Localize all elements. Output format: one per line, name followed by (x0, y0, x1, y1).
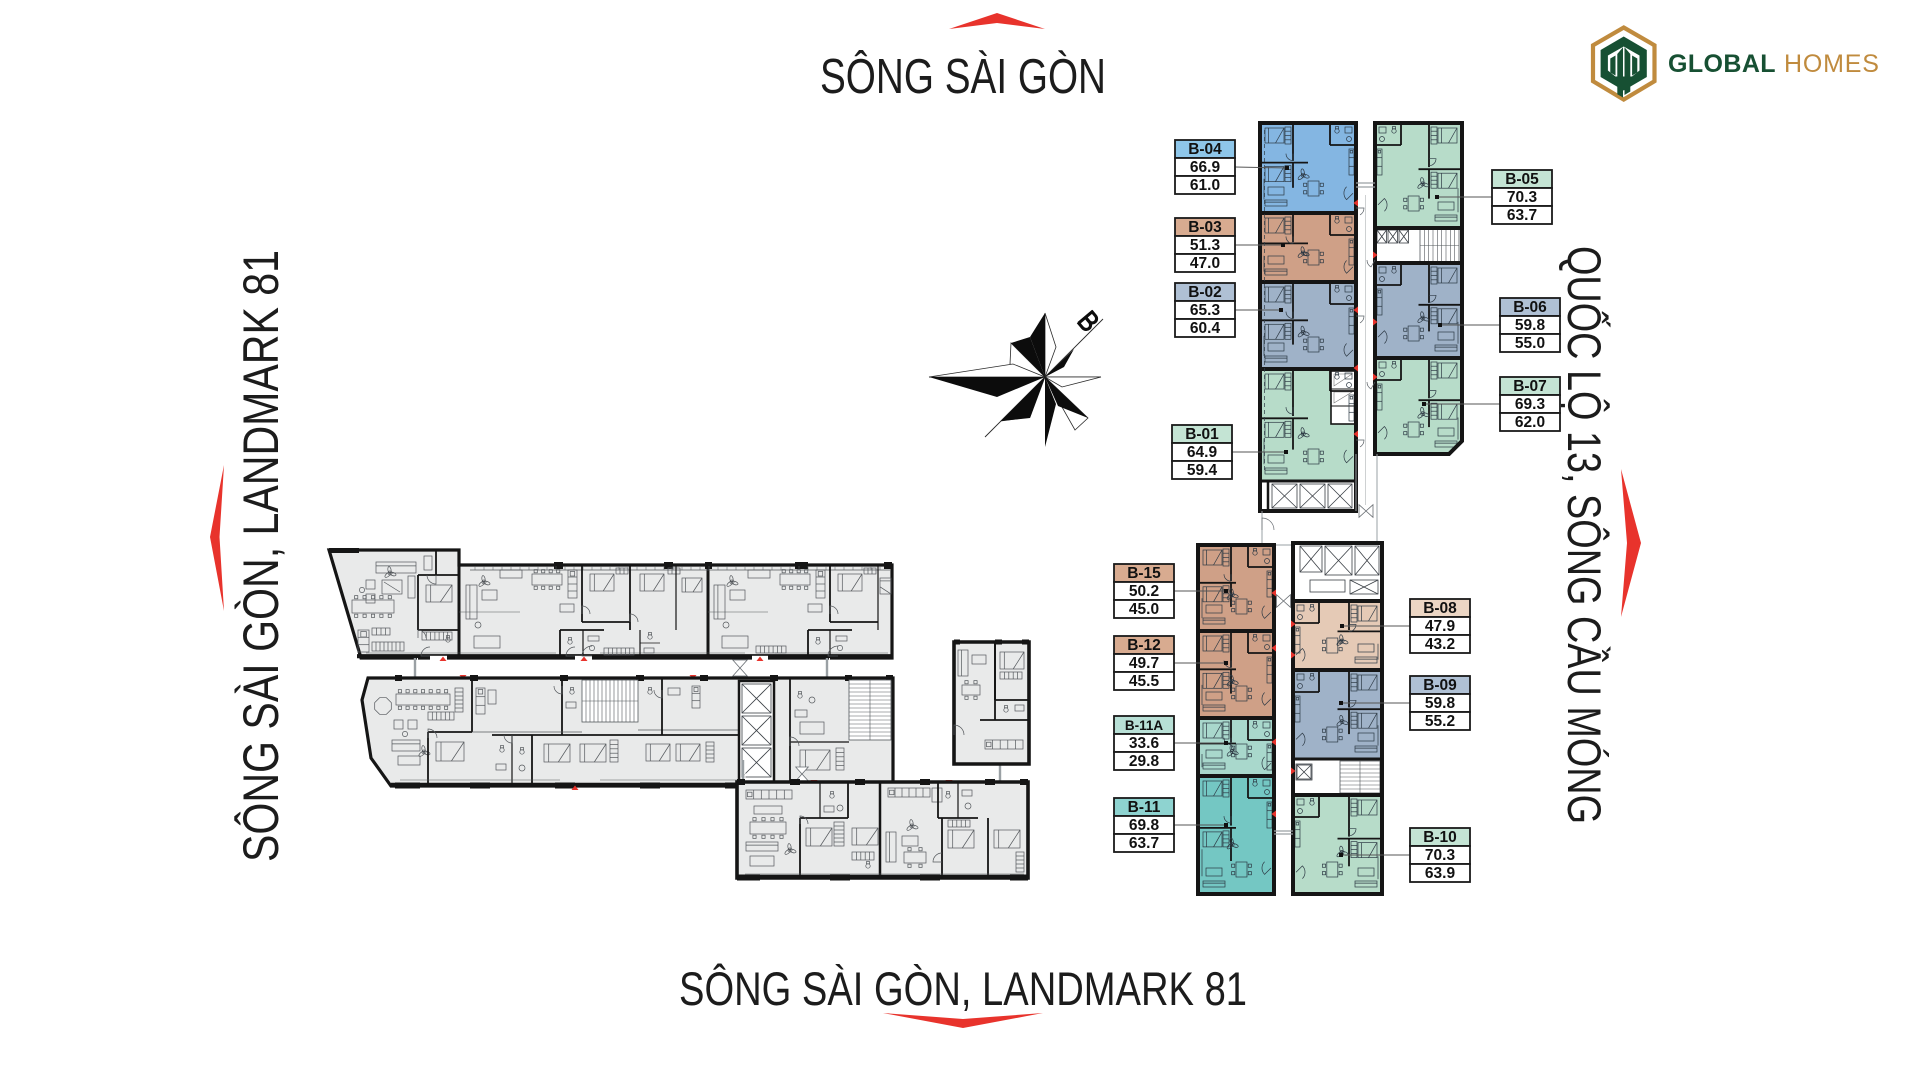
svg-text:SÔNG SÀI GÒN, LANDMARK 81: SÔNG SÀI GÒN, LANDMARK 81 (233, 250, 289, 862)
svg-text:49.7: 49.7 (1129, 655, 1159, 672)
svg-text:45.0: 45.0 (1129, 601, 1159, 618)
svg-text:64.9: 64.9 (1187, 444, 1218, 461)
svg-text:B-09: B-09 (1423, 677, 1457, 694)
svg-text:55.0: 55.0 (1515, 335, 1545, 352)
svg-text:65.3: 65.3 (1190, 302, 1221, 319)
svg-text:B-07: B-07 (1513, 378, 1547, 395)
svg-text:70.3: 70.3 (1425, 847, 1456, 864)
svg-text:B-15: B-15 (1127, 565, 1161, 582)
svg-text:60.4: 60.4 (1190, 320, 1221, 337)
svg-text:45.5: 45.5 (1129, 673, 1160, 690)
svg-text:SÔNG SÀI GÒN, LANDMARK 81: SÔNG SÀI GÒN, LANDMARK 81 (679, 962, 1247, 1015)
svg-text:B-10: B-10 (1423, 829, 1457, 846)
svg-text:59.8: 59.8 (1425, 695, 1456, 712)
svg-text:63.7: 63.7 (1507, 207, 1537, 224)
svg-text:47.0: 47.0 (1190, 255, 1220, 272)
svg-text:51.3: 51.3 (1190, 237, 1221, 254)
svg-text:B-06: B-06 (1513, 299, 1547, 316)
svg-text:55.2: 55.2 (1425, 713, 1455, 730)
svg-text:59.8: 59.8 (1515, 317, 1546, 334)
svg-text:59.4: 59.4 (1187, 462, 1218, 479)
svg-text:QUỐC LỘ 13, SÔNG CẦU MÓNG: QUỐC LỘ 13, SÔNG CẦU MÓNG (1558, 246, 1611, 824)
svg-text:SÔNG SÀI GÒN: SÔNG SÀI GÒN (820, 50, 1106, 104)
svg-text:47.9: 47.9 (1425, 618, 1456, 635)
svg-text:66.9: 66.9 (1190, 159, 1221, 176)
svg-text:69.3: 69.3 (1515, 396, 1546, 413)
svg-text:43.2: 43.2 (1425, 636, 1455, 653)
svg-text:B-02: B-02 (1188, 284, 1222, 301)
svg-text:70.3: 70.3 (1507, 189, 1538, 206)
svg-text:69.8: 69.8 (1129, 817, 1160, 834)
svg-text:B-05: B-05 (1505, 171, 1539, 188)
svg-text:B-04: B-04 (1188, 141, 1222, 158)
svg-text:62.0: 62.0 (1515, 414, 1545, 431)
svg-text:HOMES: HOMES (1784, 50, 1880, 78)
svg-text:33.6: 33.6 (1129, 735, 1160, 752)
svg-text:B-11A: B-11A (1125, 718, 1164, 733)
svg-text:B-12: B-12 (1127, 637, 1161, 654)
svg-text:B-11: B-11 (1128, 799, 1161, 816)
svg-text:50.2: 50.2 (1129, 583, 1159, 600)
svg-text:63.7: 63.7 (1129, 835, 1159, 852)
svg-text:29.8: 29.8 (1129, 753, 1160, 770)
svg-text:B-01: B-01 (1185, 426, 1219, 443)
svg-text:61.0: 61.0 (1190, 177, 1220, 194)
svg-text:GLOBAL: GLOBAL (1668, 50, 1776, 78)
svg-text:B-08: B-08 (1423, 600, 1457, 617)
svg-text:63.9: 63.9 (1425, 865, 1456, 882)
svg-text:B-03: B-03 (1188, 219, 1222, 236)
